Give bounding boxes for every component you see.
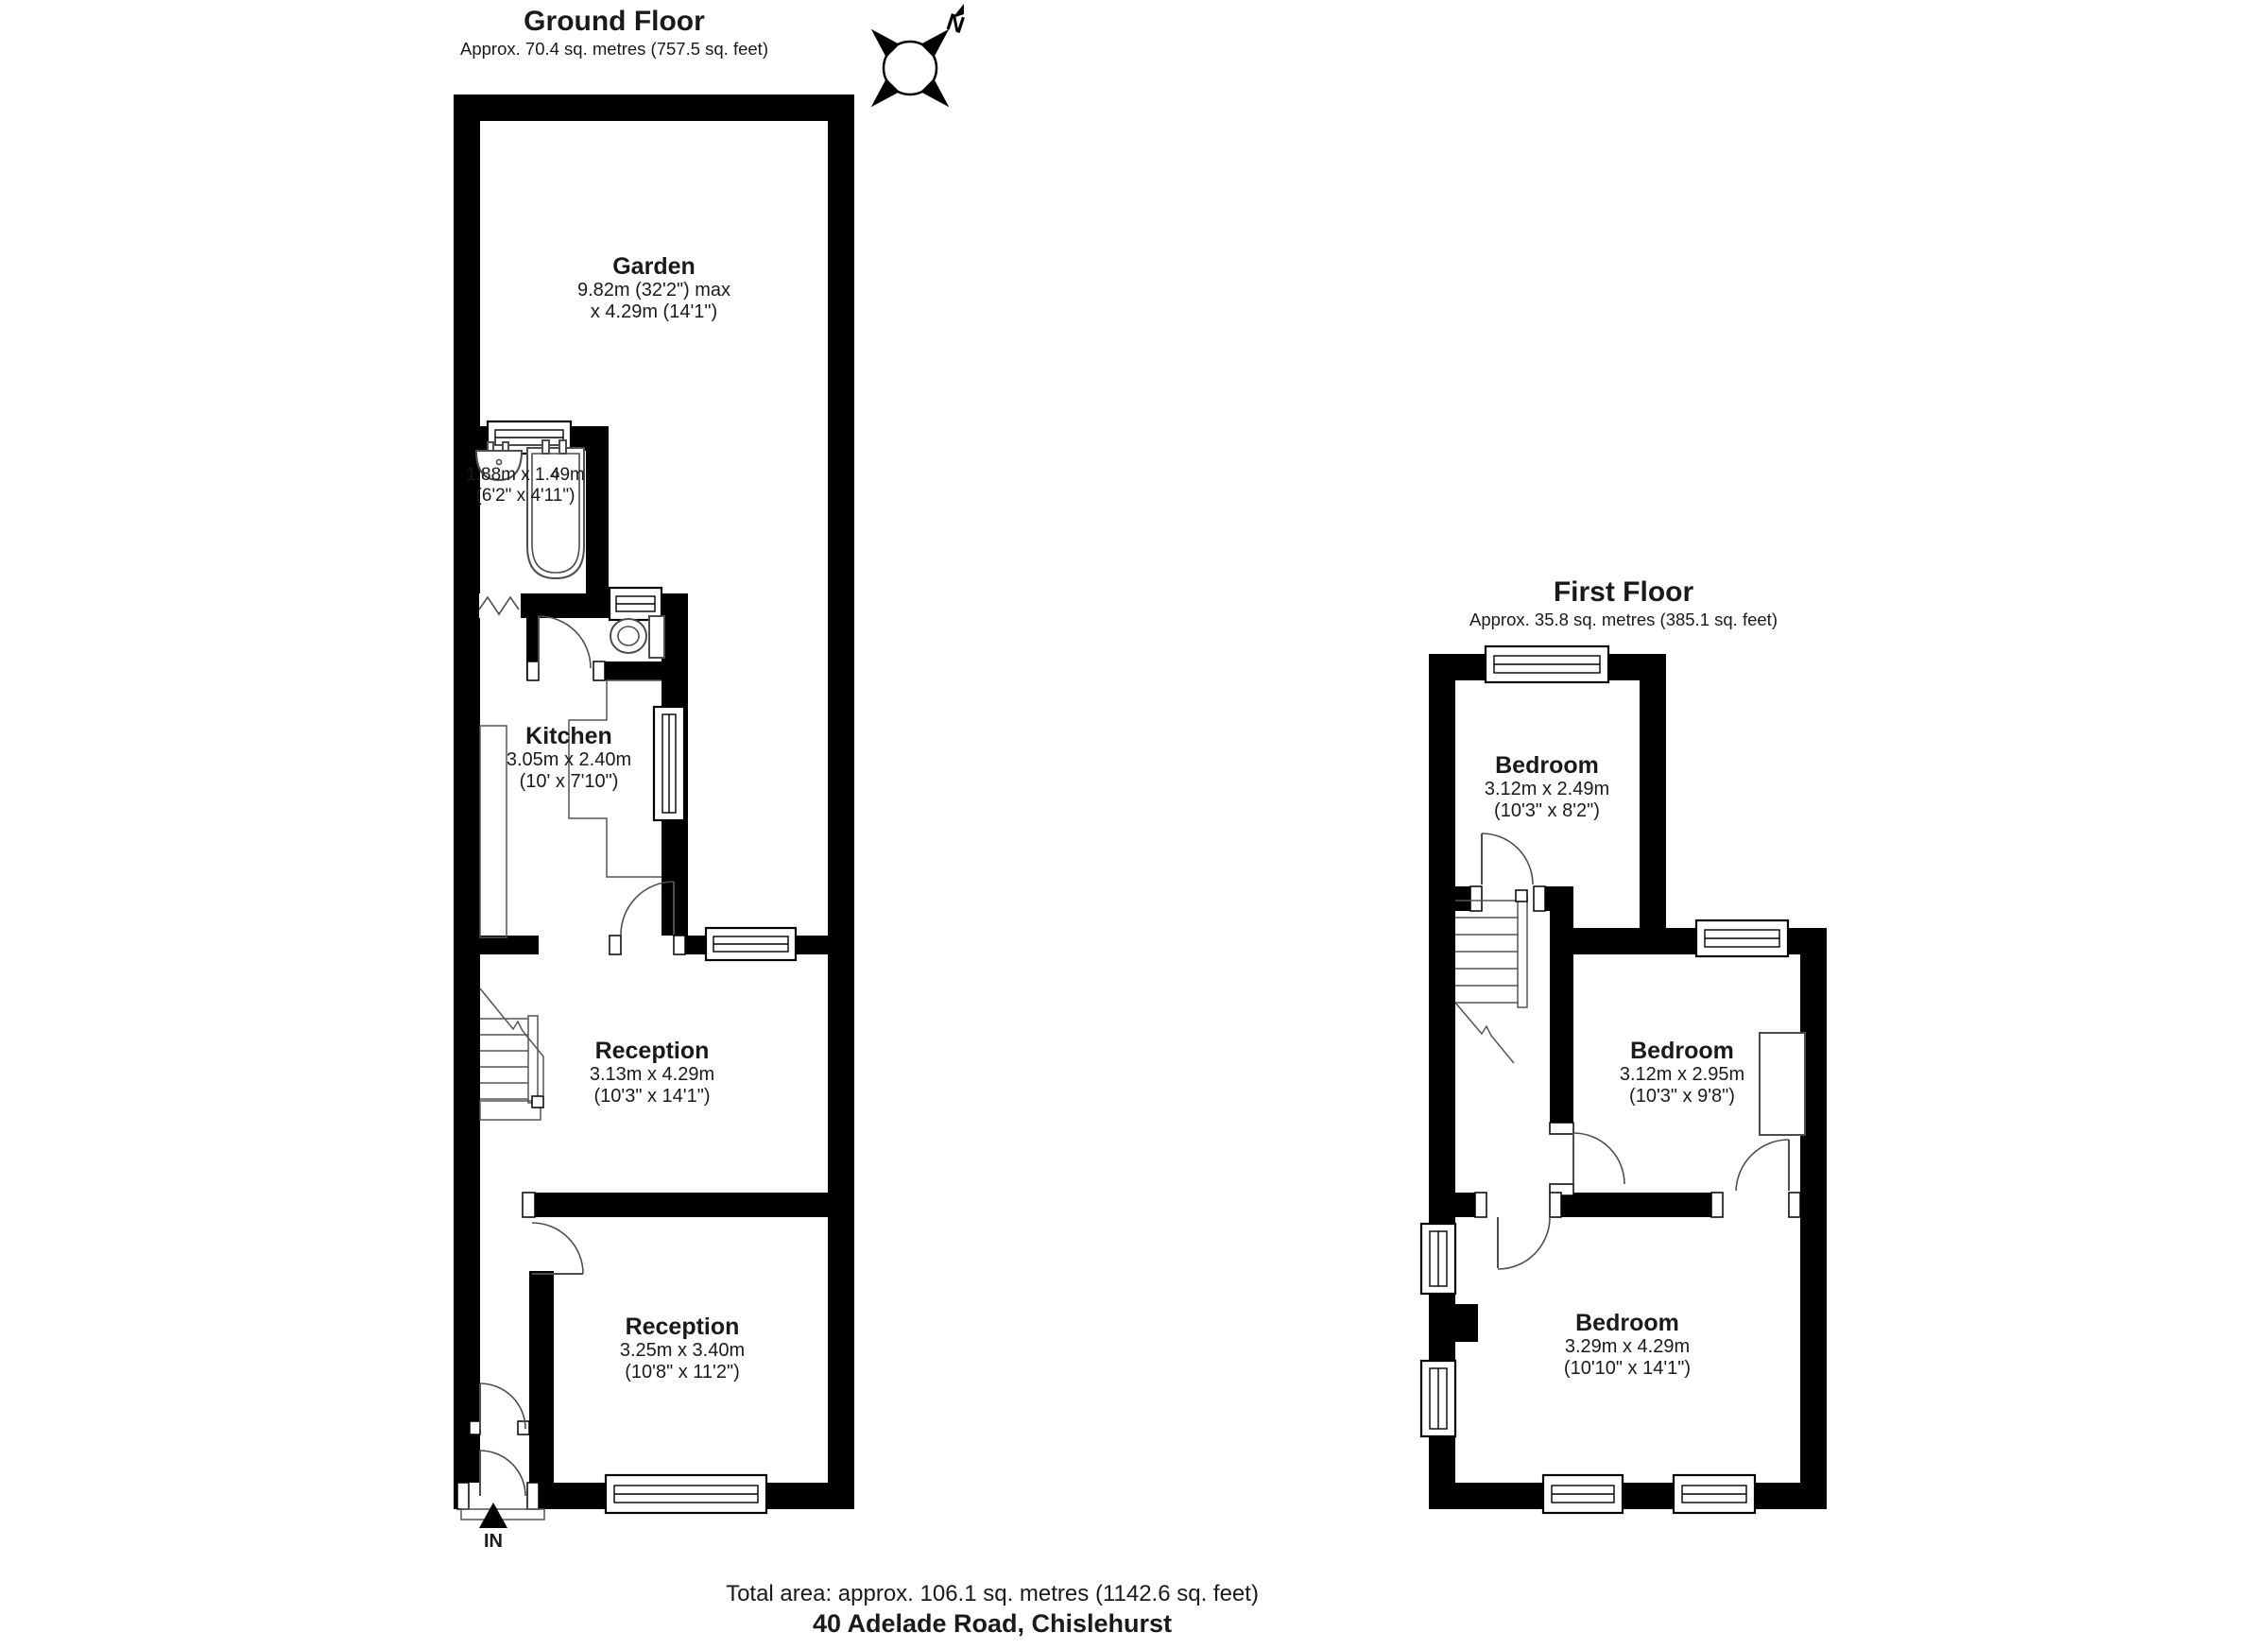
room-name: Reception [590,1038,714,1064]
room-dims: 3.12m x 2.49m [1485,779,1609,800]
room-label-bathroom: 1.88m x 1.49m (6'2" x 4'11") [466,465,585,507]
entrance-in-label: IN [484,1531,503,1553]
first-floor-title-block: First Floor Approx. 35.8 sq. metres (385… [1469,576,1778,631]
room-dims: (6'2" x 4'11") [466,486,585,507]
room-label-bedroom-rear: Bedroom 3.12m x 2.49m (10'3" x 8'2") [1485,752,1609,822]
room-dims: 3.29m x 4.29m [1564,1336,1691,1358]
bedroom-rear-window-icon [1486,646,1608,682]
room-dims: (10' x 7'10") [507,771,631,793]
footer-block: Total area: approx. 106.1 sq. metres (11… [726,1580,1259,1640]
bedroom-rear-door-icon [1482,833,1533,885]
room-dims: 3.25m x 3.40m [620,1340,745,1362]
wc-door-icon [539,616,591,668]
room-label-kitchen: Kitchen 3.05m x 2.40m (10' x 7'10") [507,723,631,793]
side-window-upper-icon [1421,1224,1455,1294]
side-window-lower-icon [1421,1361,1455,1436]
total-area-text: Total area: approx. 106.1 sq. metres (11… [726,1580,1259,1608]
room-dims: (10'8" x 11'2") [620,1362,745,1383]
kitchen-window-icon [654,707,684,820]
address-text: 40 Adelade Road, Chislehurst [726,1608,1259,1640]
bedroom-front-window-left-icon [1543,1475,1623,1513]
room-label-garden: Garden 9.82m (32'2") max x 4.29m (14'1") [577,253,730,323]
room-dims: 3.05m x 2.40m [507,749,631,771]
bedroom-middle-door-icon [1573,1133,1624,1184]
room-dims: 1.88m x 1.49m [466,465,585,486]
room-name: Bedroom [1564,1310,1691,1336]
room-name: Reception [620,1314,745,1340]
room-label-bedroom-front: Bedroom 3.29m x 4.29m (10'10" x 14'1") [1564,1310,1691,1380]
compass-icon: N [872,4,968,106]
room-dims: (10'3" x 8'2") [1485,800,1609,822]
room-dims: (10'3" x 14'1") [590,1086,714,1108]
room-dims: 3.13m x 4.29m [590,1064,714,1086]
room-name: Bedroom [1620,1038,1744,1064]
room-name: Kitchen [507,723,631,749]
kitchen-counter-left [480,726,507,937]
reception-front-window-icon [606,1475,766,1513]
room-dims: (10'10" x 14'1") [1564,1358,1691,1380]
room-dims: 3.12m x 2.95m [1620,1064,1744,1086]
floorplan-page: N Ground Floor Approx. 70.4 sq. metres (… [0,0,2268,1649]
bedroom-connecting-door-icon [1736,1140,1789,1191]
room-dims: 9.82m (32'2") max [577,280,730,301]
ground-floor-title: Ground Floor [460,6,768,38]
ground-floor-subtitle: Approx. 70.4 sq. metres (757.5 sq. feet) [460,38,768,60]
ground-floor-title-block: Ground Floor Approx. 70.4 sq. metres (75… [460,6,768,60]
room-label-reception-front: Reception 3.25m x 3.40m (10'8" x 11'2") [620,1314,745,1383]
stairs-ground [480,988,543,1120]
stairs-first [1455,890,1527,1063]
first-floor-subtitle: Approx. 35.8 sq. metres (385.1 sq. feet) [1469,609,1778,631]
entrance-porch [461,1509,544,1520]
room-name: Garden [577,253,730,280]
room-label-bedroom-middle: Bedroom 3.12m x 2.95m (10'3" x 9'8") [1620,1038,1744,1108]
bedroom-middle-recess [1760,1033,1805,1135]
room-dims: x 4.29m (14'1") [577,301,730,323]
bedroom-middle-window-icon [1696,920,1788,956]
room-dims: (10'3" x 9'8") [1620,1086,1744,1108]
first-floor-title: First Floor [1469,576,1778,609]
floorplan-drawing: N [0,0,2268,1649]
room-label-reception-rear: Reception 3.13m x 4.29m (10'3" x 14'1") [590,1038,714,1108]
toilet-icon [610,616,664,658]
bedroom-front-door-icon [1498,1217,1550,1269]
room-name: Bedroom [1485,752,1609,779]
reception-rear-window-icon [706,928,796,960]
wc-window-icon [610,588,661,620]
compass-north-label: N [943,9,968,39]
bedroom-front-window-right-icon [1674,1475,1755,1513]
bathtub-icon [527,440,584,578]
